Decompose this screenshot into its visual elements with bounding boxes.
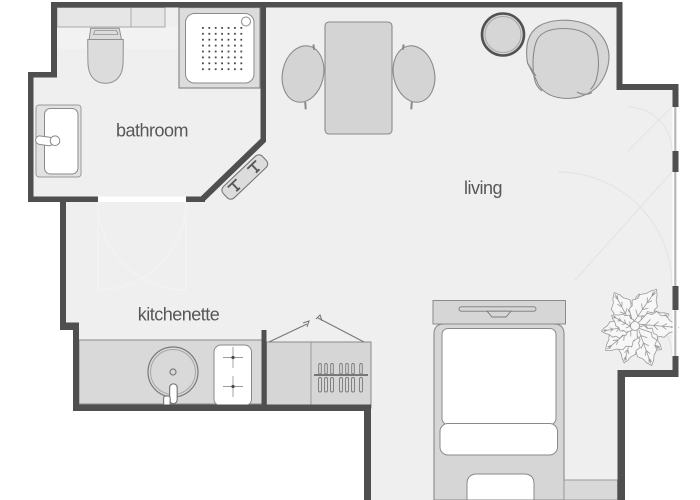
svg-text:living: living <box>464 178 502 198</box>
svg-text:bathroom: bathroom <box>116 121 188 141</box>
svg-text:kitchenette: kitchenette <box>138 305 220 325</box>
